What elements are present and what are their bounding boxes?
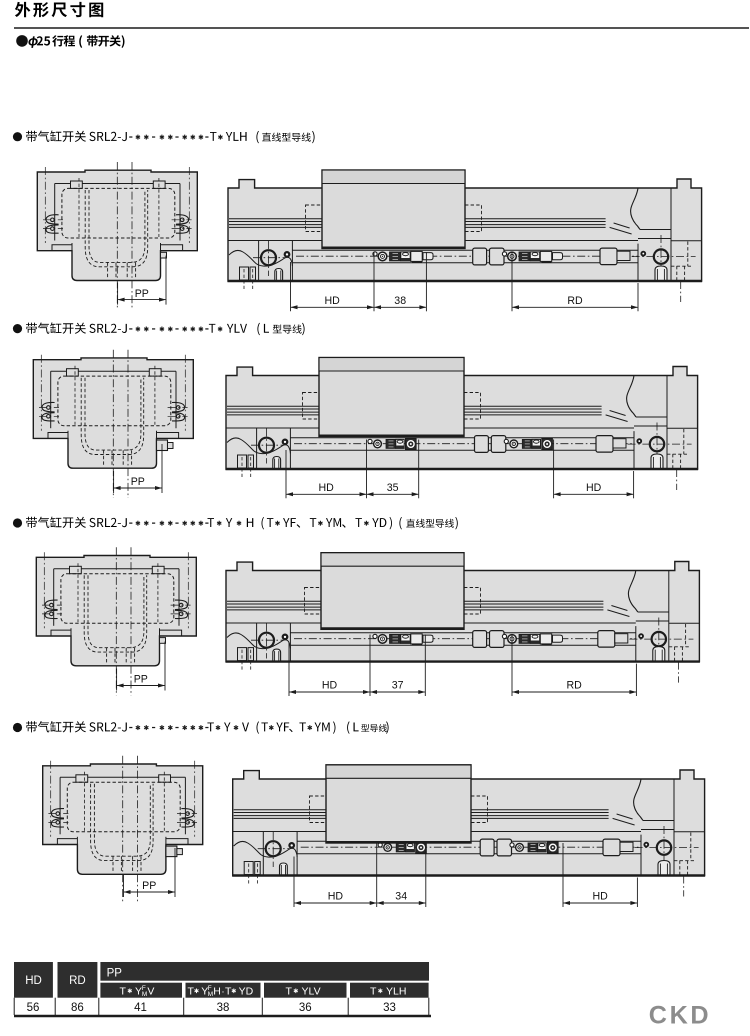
svg-text:T: T	[370, 986, 377, 998]
svg-text:HD: HD	[328, 891, 344, 903]
svg-text:RD: RD	[567, 680, 583, 692]
svg-text:HD: HD	[325, 295, 341, 307]
svg-text:86: 86	[71, 1002, 84, 1014]
svg-text:V: V	[147, 986, 154, 998]
svg-text:YLV: YLV	[302, 986, 321, 998]
svg-text:33: 33	[383, 1002, 396, 1014]
svg-text:38: 38	[217, 1002, 230, 1014]
svg-text:PP: PP	[131, 476, 145, 488]
svg-text:H: H	[213, 986, 221, 998]
svg-text:HD: HD	[25, 975, 42, 987]
svg-text:37: 37	[392, 680, 404, 692]
svg-text:41: 41	[134, 1002, 147, 1014]
svg-text:35: 35	[387, 482, 399, 494]
svg-text:PP: PP	[142, 880, 156, 892]
svg-text:38: 38	[394, 295, 406, 307]
svg-text:T: T	[120, 986, 127, 998]
svg-text:YD: YD	[239, 986, 254, 998]
svg-text:RD: RD	[567, 295, 583, 307]
svg-text:56: 56	[27, 1002, 40, 1014]
svg-text:T: T	[286, 986, 293, 998]
svg-text:PP: PP	[135, 288, 149, 300]
svg-text:HD: HD	[593, 891, 609, 903]
svg-text:T: T	[188, 986, 195, 998]
svg-text:34: 34	[395, 891, 407, 903]
svg-text:36: 36	[299, 1002, 312, 1014]
svg-text:PP: PP	[107, 968, 123, 980]
svg-text:HD: HD	[319, 482, 335, 494]
svg-text:PP: PP	[134, 674, 148, 686]
svg-text:HD: HD	[586, 482, 602, 494]
svg-text:T: T	[225, 986, 232, 998]
svg-text:YLH: YLH	[386, 986, 406, 998]
svg-text:HD: HD	[322, 680, 338, 692]
svg-text:RD: RD	[69, 975, 86, 987]
svg-text:CKD: CKD	[649, 1002, 711, 1030]
